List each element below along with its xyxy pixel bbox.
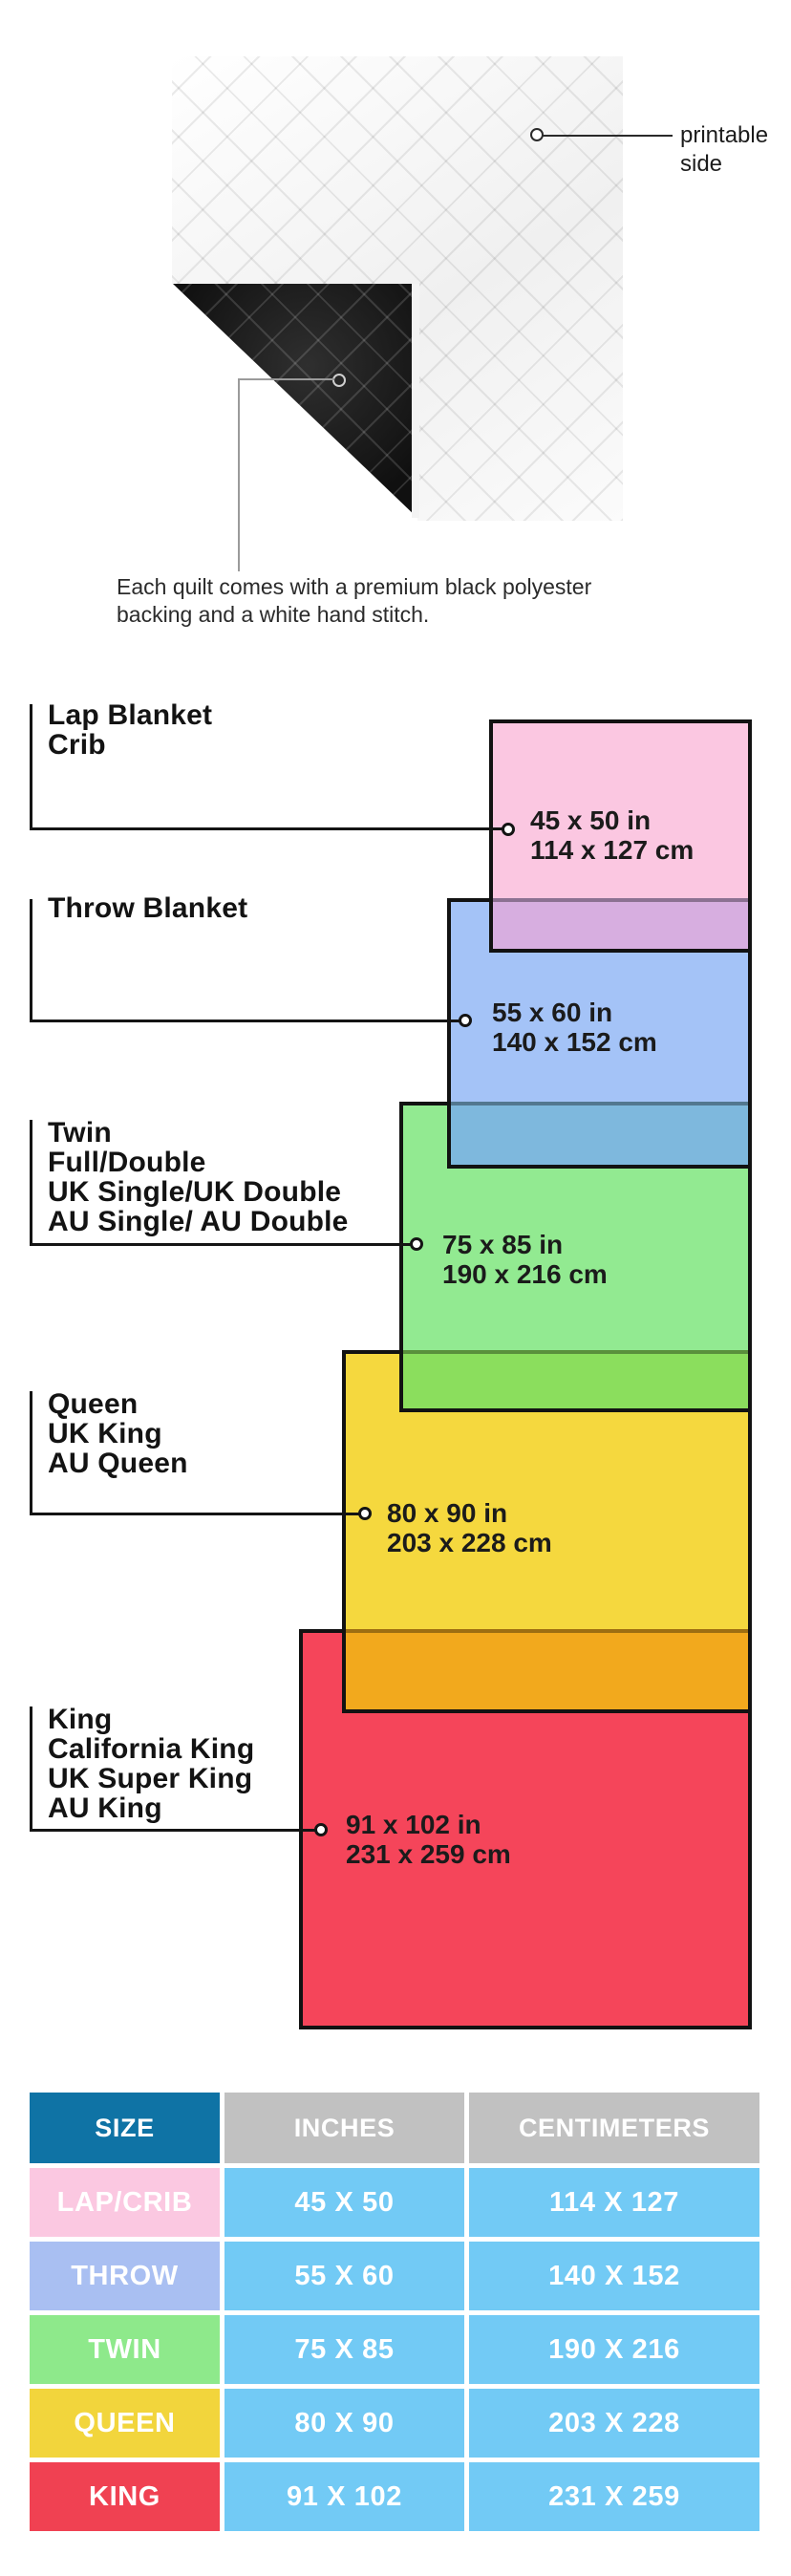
bracket-queen [30,1391,32,1515]
dims-king: 91 x 102 in 231 x 259 cm [346,1810,511,1869]
bracket-king [30,1707,32,1832]
quilt-black-backing-fold [173,284,417,518]
marker-throw-icon [459,1014,472,1027]
label-queen: Queen UK King AU Queen [48,1389,188,1478]
dims-queen-cm: 203 x 228 cm [387,1528,552,1557]
header-inches: INCHES [224,2093,464,2163]
bracket-twin [30,1120,32,1246]
backing-leader-line-horizontal [239,378,334,380]
header-size: SIZE [30,2093,220,2163]
overlap-throw-twin [451,1102,748,1165]
printable-side-marker-icon [530,128,544,141]
overlap-queen-king [346,1629,748,1709]
quilt-fold-binding [412,284,419,518]
cell-twin-size: TWIN [30,2315,220,2384]
cell-queen-cm: 203 X 228 [469,2389,759,2458]
leader-queen [30,1513,360,1515]
cell-king-size: KING [30,2462,220,2531]
marker-queen-icon [358,1507,372,1520]
cell-twin-cm: 190 X 216 [469,2315,759,2384]
cell-throw-size: THROW [30,2242,220,2310]
dims-lap-in: 45 x 50 in [530,805,694,835]
dims-twin: 75 x 85 in 190 x 216 cm [442,1230,608,1289]
leader-lap [30,827,503,830]
cell-king-cm: 231 X 259 [469,2462,759,2531]
label-throw: Throw Blanket [48,893,247,923]
cell-twin-inches: 75 X 85 [224,2315,464,2384]
leader-throw [30,1020,460,1022]
dims-throw-in: 55 x 60 in [492,998,657,1027]
leader-twin [30,1243,412,1246]
dims-king-in: 91 x 102 in [346,1810,511,1839]
label-twin: Twin Full/Double UK Single/UK Double AU … [48,1118,349,1236]
cell-lapcrib-cm: 114 X 127 [469,2168,759,2237]
overlap-lap-throw [493,898,748,949]
cell-throw-cm: 140 X 152 [469,2242,759,2310]
bracket-throw [30,899,32,1022]
dims-queen: 80 x 90 in 203 x 228 cm [387,1498,552,1557]
backing-leader-line-vertical [238,378,240,571]
marker-king-icon [314,1823,328,1836]
leader-king [30,1829,316,1832]
dims-king-cm: 231 x 259 cm [346,1839,511,1869]
marker-twin-icon [410,1237,423,1251]
bracket-lap [30,704,32,830]
size-table: SIZE INCHES CENTIMETERS LAP/CRIB 45 X 50… [30,2093,759,2531]
backing-marker-icon [332,374,346,387]
label-king: King California King UK Super King AU Ki… [48,1705,254,1823]
backing-description: Each quilt comes with a premium black po… [117,573,591,629]
label-lap-crib: Lap Blanket Crib [48,700,212,760]
overlap-twin-queen [403,1350,748,1408]
dims-queen-in: 80 x 90 in [387,1498,552,1528]
header-centimeters: CENTIMETERS [469,2093,759,2163]
cell-lapcrib-size: LAP/CRIB [30,2168,220,2237]
cell-queen-inches: 80 X 90 [224,2389,464,2458]
dims-lap-crib: 45 x 50 in 114 x 127 cm [530,805,694,865]
dims-throw-cm: 140 x 152 cm [492,1027,657,1057]
dims-twin-cm: 190 x 216 cm [442,1259,608,1289]
cell-queen-size: QUEEN [30,2389,220,2458]
marker-lap-icon [502,823,515,836]
cell-lapcrib-inches: 45 X 50 [224,2168,464,2237]
dims-lap-cm: 114 x 127 cm [530,835,694,865]
dims-throw: 55 x 60 in 140 x 152 cm [492,998,657,1057]
printable-side-label: printable side [680,121,791,179]
printable-side-leader-line [543,135,673,137]
dims-twin-in: 75 x 85 in [442,1230,608,1259]
cell-throw-inches: 55 X 60 [224,2242,464,2310]
quilt-size-infographic: printable side Each quilt comes with a p… [0,0,791,2576]
cell-king-inches: 91 X 102 [224,2462,464,2531]
